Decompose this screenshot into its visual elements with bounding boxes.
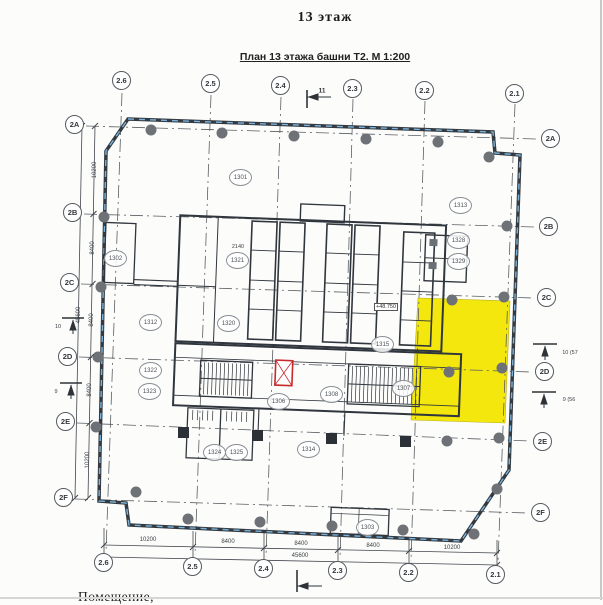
scan-edge (600, 0, 602, 600)
scan-edge (0, 597, 603, 599)
grid-bubble-col: 2.5 (183, 557, 202, 576)
room-bubble: 1325 (225, 444, 248, 461)
dim-label: 8400 (221, 539, 234, 545)
grid-bubble-row: 2F (54, 488, 73, 507)
elevation-marker: +48.750 (374, 303, 398, 311)
section-label-right-upper: 10 (57 (562, 350, 578, 356)
room-bubble: 1321 (226, 252, 249, 269)
grid-bubble-col: 2.1 (486, 565, 505, 584)
dim-total-label: 45600 (292, 553, 309, 559)
grid-bubble-col: 2.6 (112, 71, 131, 90)
dim-label: 8400 (294, 541, 307, 547)
grid-bubble-row: 2E (56, 412, 75, 431)
scanned-floor-plan-page: { "header": { "floor_title": "13 этаж", … (0, 0, 603, 600)
section-label-right-lower: 9 (56 (563, 397, 576, 403)
dim-label: 10200 (140, 537, 157, 543)
room-bubble: 1313 (449, 197, 472, 214)
room-bubble: 1308 (320, 386, 343, 403)
grid-bubble-col: 2.1 (505, 84, 524, 103)
room-bubble: 1328 (447, 232, 470, 249)
room-bubble: 1329 (447, 253, 470, 270)
grid-bubble-row: 2D (58, 347, 77, 366)
grid-bubble-col: 2.2 (399, 563, 418, 582)
room-bubble: 1324 (203, 444, 226, 461)
grid-bubble-col: 2.3 (328, 561, 347, 580)
grid-bubble-row: 2E (533, 432, 552, 451)
grid-bubble-col: 2.4 (271, 76, 290, 95)
dim-label: 8400 (87, 383, 93, 396)
dim-label: 10200 (85, 452, 91, 469)
page-title: 13 этаж (298, 10, 353, 26)
grid-bubble-col: 2.6 (94, 553, 113, 572)
grid-bubble-col: 2.4 (254, 559, 273, 578)
grid-bubble-row: 2C (537, 288, 556, 307)
dim-label: 10200 (92, 162, 98, 179)
room-bubble: 1312 (139, 314, 162, 331)
section-label-top: 11 (319, 88, 326, 95)
room-bubble: 1323 (138, 383, 161, 400)
room-bubble: 1314 (297, 441, 320, 458)
section-label-left-upper: 10 (55, 324, 61, 330)
room-bubble: 1322 (139, 362, 162, 379)
grid-bubble-row: 2D (535, 362, 554, 381)
plan-subtitle: План 13 этажа башни Т2. М 1:200 (240, 51, 410, 63)
dim-total-label: 45600 (76, 307, 82, 324)
dim-label: 8400 (89, 313, 95, 326)
grid-bubble-col: 2.3 (343, 79, 362, 98)
dim-label: 8400 (90, 241, 96, 254)
room-bubble: 1306 (267, 393, 290, 410)
room-bubble: 1302 (104, 250, 127, 267)
grid-bubble-row: 2B (539, 217, 558, 236)
grid-bubble-row: 2A (541, 129, 560, 148)
room-bubble: 1320 (217, 315, 240, 332)
stair-west (199, 360, 252, 398)
room-bubble: 1301 (229, 169, 252, 186)
room-bubble: 1315 (371, 336, 394, 353)
door-width-label: 2140 (232, 244, 244, 250)
room-bubble: 1303 (356, 519, 379, 536)
section-label-left-lower: 9 (54, 389, 57, 395)
grid-bubble-col: 2.2 (415, 81, 434, 100)
alert-shaft (275, 360, 293, 386)
grid-bubble-row: 2A (65, 115, 84, 134)
room-bubble: 1307 (392, 380, 415, 397)
dim-label: 8400 (366, 543, 379, 549)
grid-bubble-row: 2C (60, 273, 79, 292)
grid-bubble-col: 2.5 (201, 74, 220, 93)
grid-bubble-row: 2F (531, 503, 550, 522)
grid-bubble-row: 2B (63, 203, 82, 222)
dim-label: 10200 (444, 545, 461, 551)
